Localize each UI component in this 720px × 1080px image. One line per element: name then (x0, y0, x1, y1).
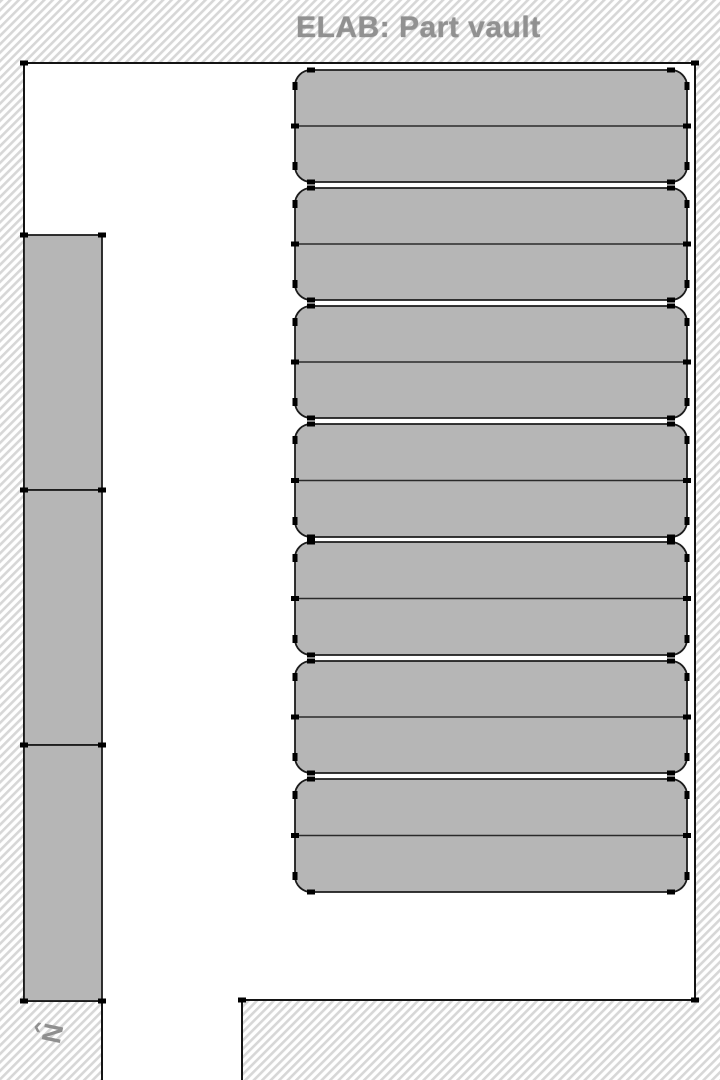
vertex-handle[interactable] (685, 872, 690, 880)
vertex-handle[interactable] (307, 304, 315, 309)
vertex-handle[interactable] (307, 777, 315, 782)
vertex-handle[interactable] (307, 422, 315, 427)
vertex-handle[interactable] (683, 596, 691, 601)
vertex-handle[interactable] (307, 659, 315, 664)
vertex-handle[interactable] (685, 753, 690, 761)
vertex-handle[interactable] (683, 242, 691, 247)
vertex-handle[interactable] (291, 360, 299, 365)
vertex-handle[interactable] (685, 554, 690, 562)
vertex-handle[interactable] (98, 743, 106, 748)
vertex-handle[interactable] (685, 280, 690, 288)
vertex-handle[interactable] (307, 771, 315, 776)
vertex-handle[interactable] (291, 242, 299, 247)
vertex-handle[interactable] (667, 540, 675, 545)
vertex-handle[interactable] (291, 596, 299, 601)
vertex-handle[interactable] (293, 673, 298, 681)
vertex-handle[interactable] (291, 478, 299, 483)
vertex-handle[interactable] (307, 540, 315, 545)
vertex-handle[interactable] (307, 416, 315, 421)
vertex-handle[interactable] (98, 233, 106, 238)
vertex-handle[interactable] (667, 422, 675, 427)
vertex-handle[interactable] (307, 653, 315, 658)
vertex-handle[interactable] (293, 200, 298, 208)
vertex-handle[interactable] (685, 635, 690, 643)
room-vertex-handle[interactable] (98, 999, 106, 1004)
vertex-handle[interactable] (307, 186, 315, 191)
vertex-handle[interactable] (20, 743, 28, 748)
room-vertex-handle[interactable] (20, 999, 28, 1004)
vertex-handle[interactable] (667, 771, 675, 776)
vertex-handle[interactable] (683, 833, 691, 838)
vertex-handle[interactable] (20, 233, 28, 238)
vertex-handle[interactable] (667, 535, 675, 540)
vertex-handle[interactable] (293, 82, 298, 90)
vertex-handle[interactable] (667, 416, 675, 421)
vertex-handle[interactable] (667, 298, 675, 303)
vertex-handle[interactable] (683, 478, 691, 483)
room-vertex-handle[interactable] (691, 61, 699, 66)
vertex-handle[interactable] (683, 715, 691, 720)
shelf-left-2[interactable] (24, 490, 102, 745)
north-compass: ‹ N (31, 1012, 64, 1052)
vertex-handle[interactable] (293, 635, 298, 643)
vertex-handle[interactable] (98, 488, 106, 493)
vertex-handle[interactable] (293, 280, 298, 288)
vertex-handle[interactable] (685, 200, 690, 208)
vertex-handle[interactable] (307, 68, 315, 73)
room-vertex-handle[interactable] (238, 998, 246, 1003)
vertex-handle[interactable] (685, 398, 690, 406)
vertex-handle[interactable] (667, 659, 675, 664)
floorplan-svg (0, 0, 720, 1080)
vertex-handle[interactable] (293, 318, 298, 326)
vertex-handle[interactable] (293, 753, 298, 761)
vertex-handle[interactable] (293, 517, 298, 525)
vertex-handle[interactable] (291, 715, 299, 720)
vertex-handle[interactable] (685, 436, 690, 444)
vertex-handle[interactable] (291, 833, 299, 838)
vertex-handle[interactable] (667, 180, 675, 185)
vertex-handle[interactable] (667, 653, 675, 658)
vertex-handle[interactable] (307, 298, 315, 303)
room-vertex-handle[interactable] (691, 998, 699, 1003)
shelf-left-1[interactable] (24, 235, 102, 490)
room-vertex-handle[interactable] (20, 61, 28, 66)
vertex-handle[interactable] (20, 488, 28, 493)
vertex-handle[interactable] (307, 890, 315, 895)
vertex-handle[interactable] (667, 777, 675, 782)
shelf-left-3[interactable] (24, 745, 102, 1001)
vertex-handle[interactable] (293, 162, 298, 170)
vertex-handle[interactable] (685, 517, 690, 525)
vertex-handle[interactable] (683, 124, 691, 129)
vertex-handle[interactable] (293, 436, 298, 444)
vertex-handle[interactable] (293, 554, 298, 562)
vertex-handle[interactable] (683, 360, 691, 365)
vertex-handle[interactable] (293, 398, 298, 406)
vertex-handle[interactable] (685, 318, 690, 326)
vertex-handle[interactable] (667, 304, 675, 309)
vertex-handle[interactable] (307, 535, 315, 540)
vertex-handle[interactable] (291, 124, 299, 129)
vertex-handle[interactable] (307, 180, 315, 185)
vertex-handle[interactable] (685, 162, 690, 170)
vertex-handle[interactable] (685, 82, 690, 90)
vertex-handle[interactable] (685, 673, 690, 681)
vertex-handle[interactable] (685, 791, 690, 799)
vertex-handle[interactable] (667, 68, 675, 73)
vertex-handle[interactable] (667, 890, 675, 895)
vertex-handle[interactable] (293, 791, 298, 799)
page-title: ELAB: Part vault (296, 11, 541, 45)
floorplan-canvas: ELAB: Part vault ‹ N (0, 0, 720, 1080)
vertex-handle[interactable] (293, 872, 298, 880)
vertex-handle[interactable] (667, 186, 675, 191)
